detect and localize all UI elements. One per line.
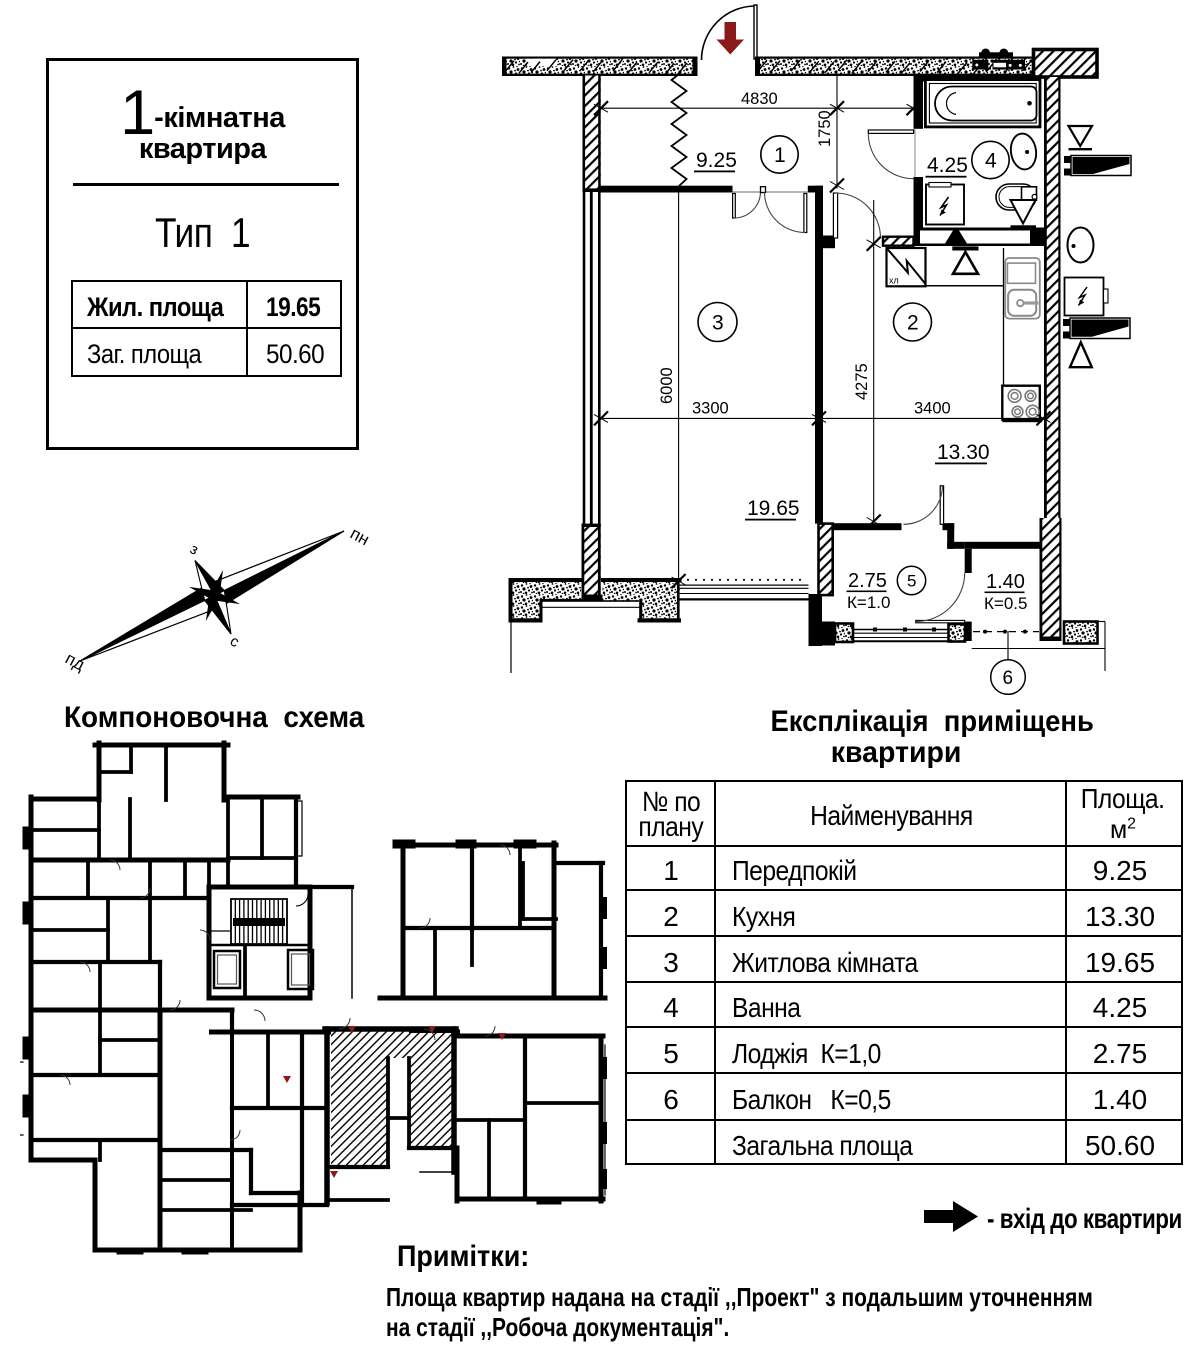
svg-text:хл: хл [889, 276, 899, 286]
svg-text:3: 3 [712, 312, 724, 335]
svg-text:5: 5 [907, 572, 916, 591]
svg-text:1750: 1750 [816, 110, 834, 147]
svg-text:пд: пд [62, 649, 88, 675]
svg-text:1.40: 1.40 [986, 571, 1025, 593]
svg-text:3300: 3300 [692, 400, 729, 418]
svg-text:4275: 4275 [853, 363, 871, 400]
svg-text:2.75: 2.75 [848, 570, 887, 592]
svg-text:6: 6 [1003, 668, 1014, 689]
svg-text:К=0.5: К=0.5 [984, 594, 1027, 613]
svg-text:6000: 6000 [658, 367, 676, 404]
svg-text:19.65: 19.65 [747, 497, 800, 520]
svg-text:з: з [187, 541, 201, 559]
svg-text:2: 2 [907, 312, 919, 335]
svg-text:13.30: 13.30 [937, 441, 990, 464]
svg-text:3400: 3400 [914, 400, 951, 418]
svg-text:4: 4 [985, 150, 997, 173]
svg-text:с: с [227, 633, 242, 652]
svg-text:К=1.0: К=1.0 [847, 593, 890, 612]
svg-text:9.25: 9.25 [696, 149, 737, 172]
svg-text:4.25: 4.25 [927, 154, 968, 177]
svg-text:1: 1 [774, 144, 786, 167]
svg-text:пн: пн [347, 524, 372, 550]
svg-text:4830: 4830 [741, 90, 778, 108]
